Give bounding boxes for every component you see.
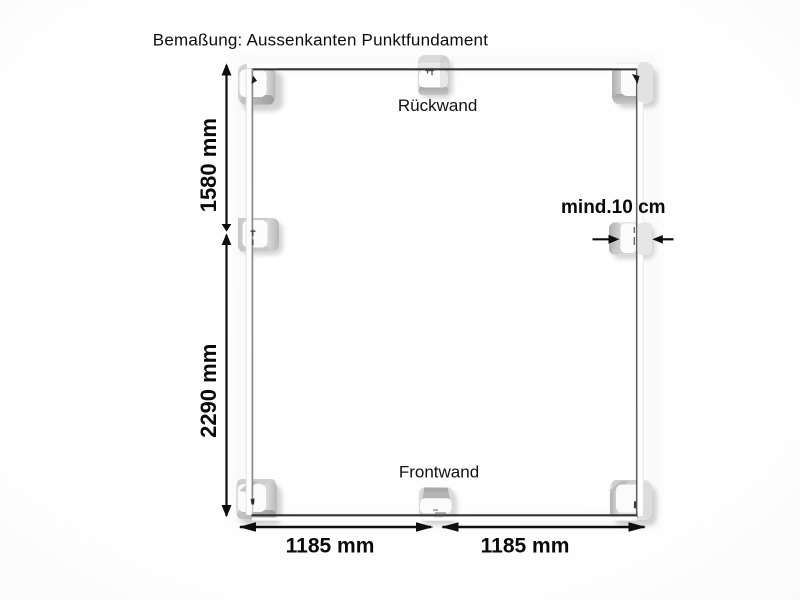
svg-text:2290 mm: 2290 mm: [196, 344, 221, 438]
svg-text:Rückwand: Rückwand: [398, 96, 477, 115]
svg-text:1580 mm: 1580 mm: [196, 118, 221, 212]
svg-text:1185 mm: 1185 mm: [481, 535, 570, 558]
svg-text:mind.10 cm: mind.10 cm: [561, 197, 666, 218]
svg-text:Frontwand: Frontwand: [399, 462, 479, 481]
svg-text:1185 mm: 1185 mm: [286, 535, 375, 558]
svg-text:Bemaßung: Aussenkanten Punktfu: Bemaßung: Aussenkanten Punktfundament: [153, 31, 488, 50]
